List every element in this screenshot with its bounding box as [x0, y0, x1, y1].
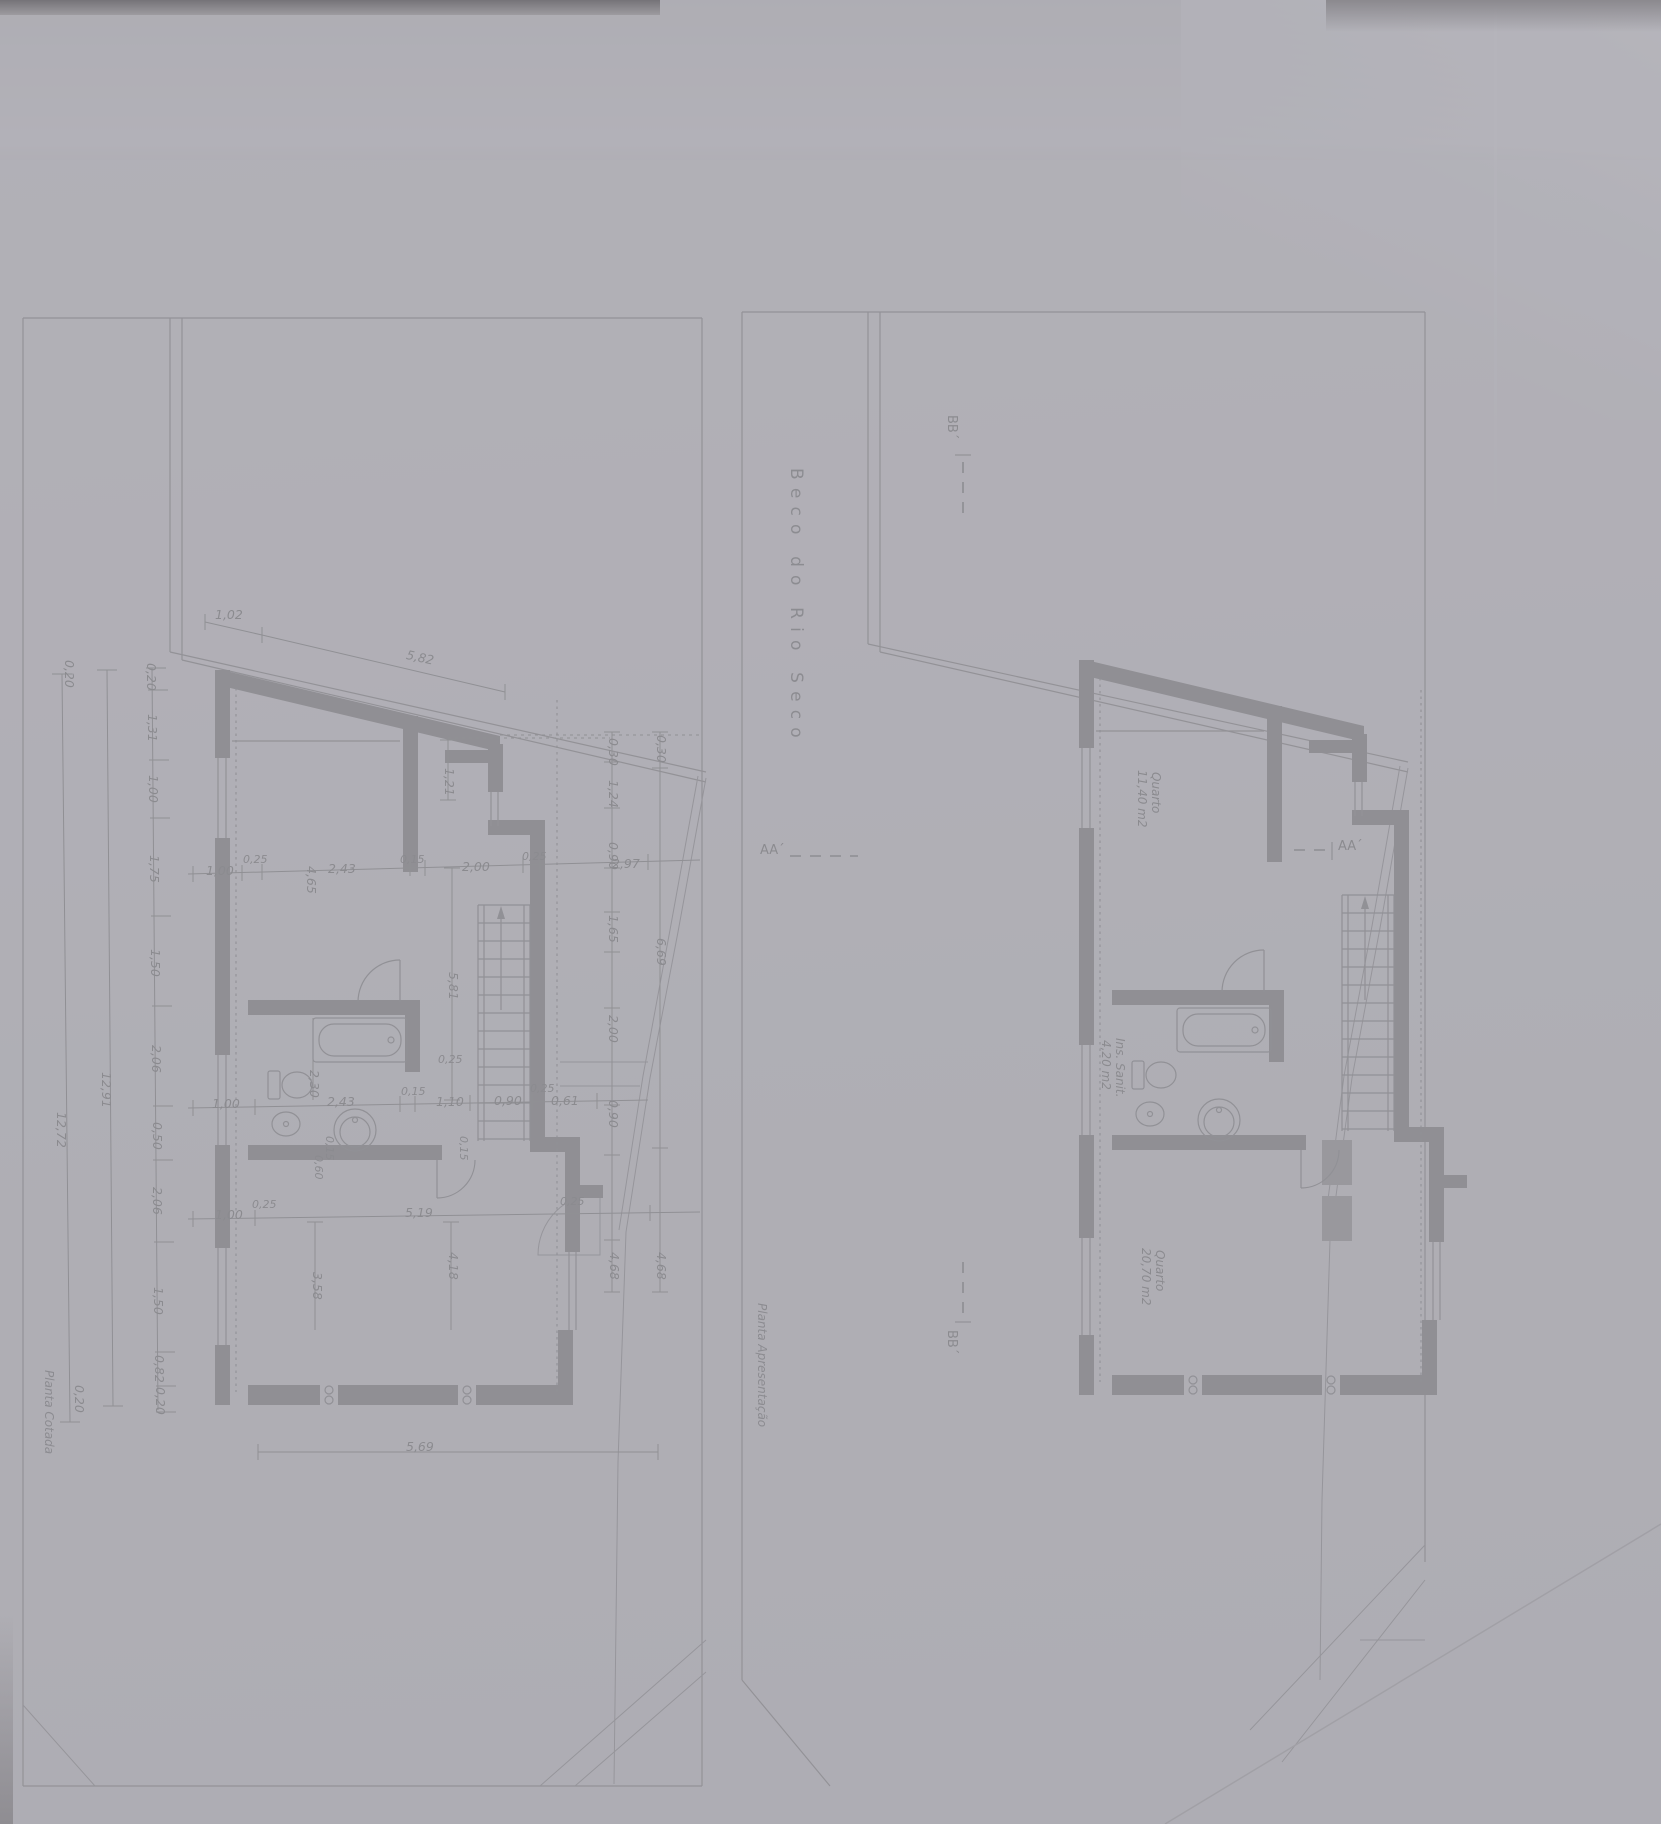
photo-edge-bottom-left [0, 1614, 13, 1824]
paper-corner-highlight [0, 0, 1661, 1824]
photo-edge-top-right [1326, 0, 1661, 32]
scanned-floor-plan-photo: 0,20 1,31 1,00 1,75 1,50 2,06 0,50 2,06 … [0, 0, 1661, 1824]
photo-edge-top-left [0, 0, 660, 15]
